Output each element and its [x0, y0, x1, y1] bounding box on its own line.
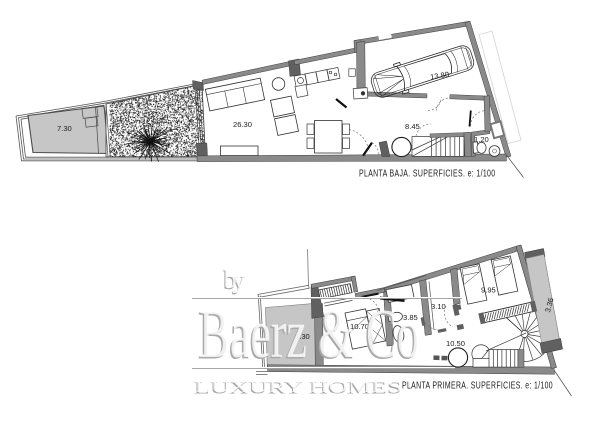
svg-text:LUXURY HOMES: LUXURY HOMES — [195, 377, 403, 396]
svg-text:9.95: 9.95 — [481, 286, 496, 295]
svg-text:1.20: 1.20 — [474, 135, 489, 144]
svg-text:7.30: 7.30 — [57, 124, 72, 133]
svg-text:8.45: 8.45 — [405, 122, 420, 131]
svg-text:PLANTA BAJA. SUPERFICIES. e: 1: PLANTA BAJA. SUPERFICIES. e: 1/100 — [359, 169, 496, 180]
svg-text:3.10: 3.10 — [431, 302, 446, 311]
svg-text:10.50: 10.50 — [446, 339, 465, 348]
svg-text:26.30: 26.30 — [233, 120, 252, 129]
svg-text:PLANTA PRIMERA. SUPERFICIES. e: PLANTA PRIMERA. SUPERFICIES. e: 1/100 — [402, 381, 553, 392]
svg-text:12.08: 12.08 — [142, 117, 161, 126]
svg-text:by: by — [224, 265, 246, 294]
svg-text:Baerz & Co: Baerz & Co — [199, 296, 420, 373]
